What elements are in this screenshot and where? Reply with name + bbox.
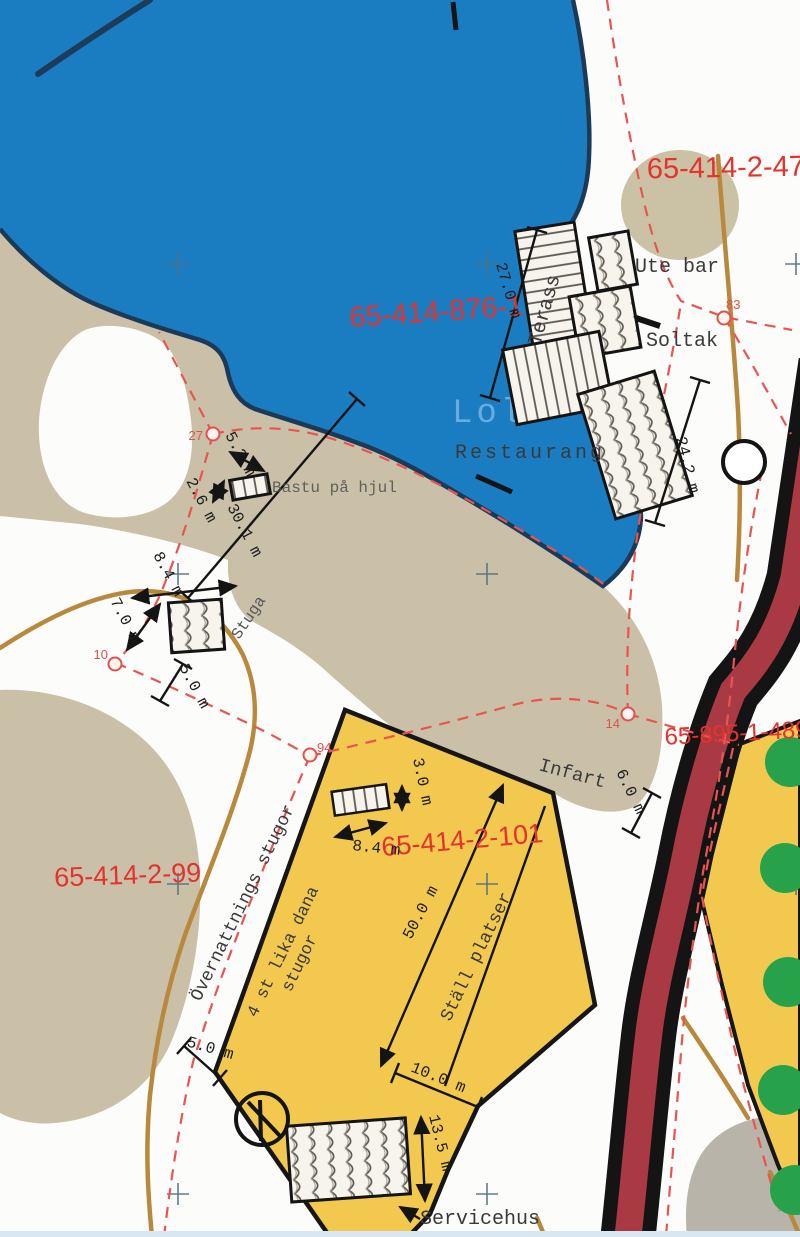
node-27 bbox=[207, 428, 220, 441]
site-plan-map: Lolo bbox=[0, 0, 800, 1237]
parcel-65-414-2-47: 65-414-2-47 bbox=[647, 151, 800, 186]
node-94 bbox=[304, 749, 317, 762]
label-servicehus: Servicehus bbox=[420, 1208, 540, 1231]
survey-mark-top bbox=[453, 2, 456, 30]
building-ute-bar bbox=[589, 231, 638, 291]
node-10-label: 10 bbox=[94, 647, 108, 662]
node-94-label: 94 bbox=[317, 740, 331, 755]
building-servicehus bbox=[286, 1118, 410, 1202]
node-83 bbox=[718, 312, 731, 325]
node-14 bbox=[622, 708, 635, 721]
node-14-label: 14 bbox=[606, 716, 620, 731]
scan-edge-strip bbox=[0, 1231, 800, 1237]
parcel-65-414-2-99: 65-414-2-99 bbox=[54, 857, 202, 892]
site-plan-page: Lolo bbox=[0, 0, 800, 1237]
white-clearing bbox=[39, 326, 192, 518]
well-symbol bbox=[723, 441, 765, 483]
label-ute-bar: Ute bar bbox=[635, 256, 719, 279]
building-stuga bbox=[168, 599, 224, 653]
label-soltak: Soltak bbox=[646, 330, 718, 353]
node-10 bbox=[109, 658, 122, 671]
label-bastu: Bastu på hjul bbox=[272, 479, 397, 497]
node-83-label: 83 bbox=[726, 297, 740, 312]
label-restaurang: Restaurang bbox=[455, 442, 605, 465]
node-27-label: 27 bbox=[189, 428, 203, 443]
